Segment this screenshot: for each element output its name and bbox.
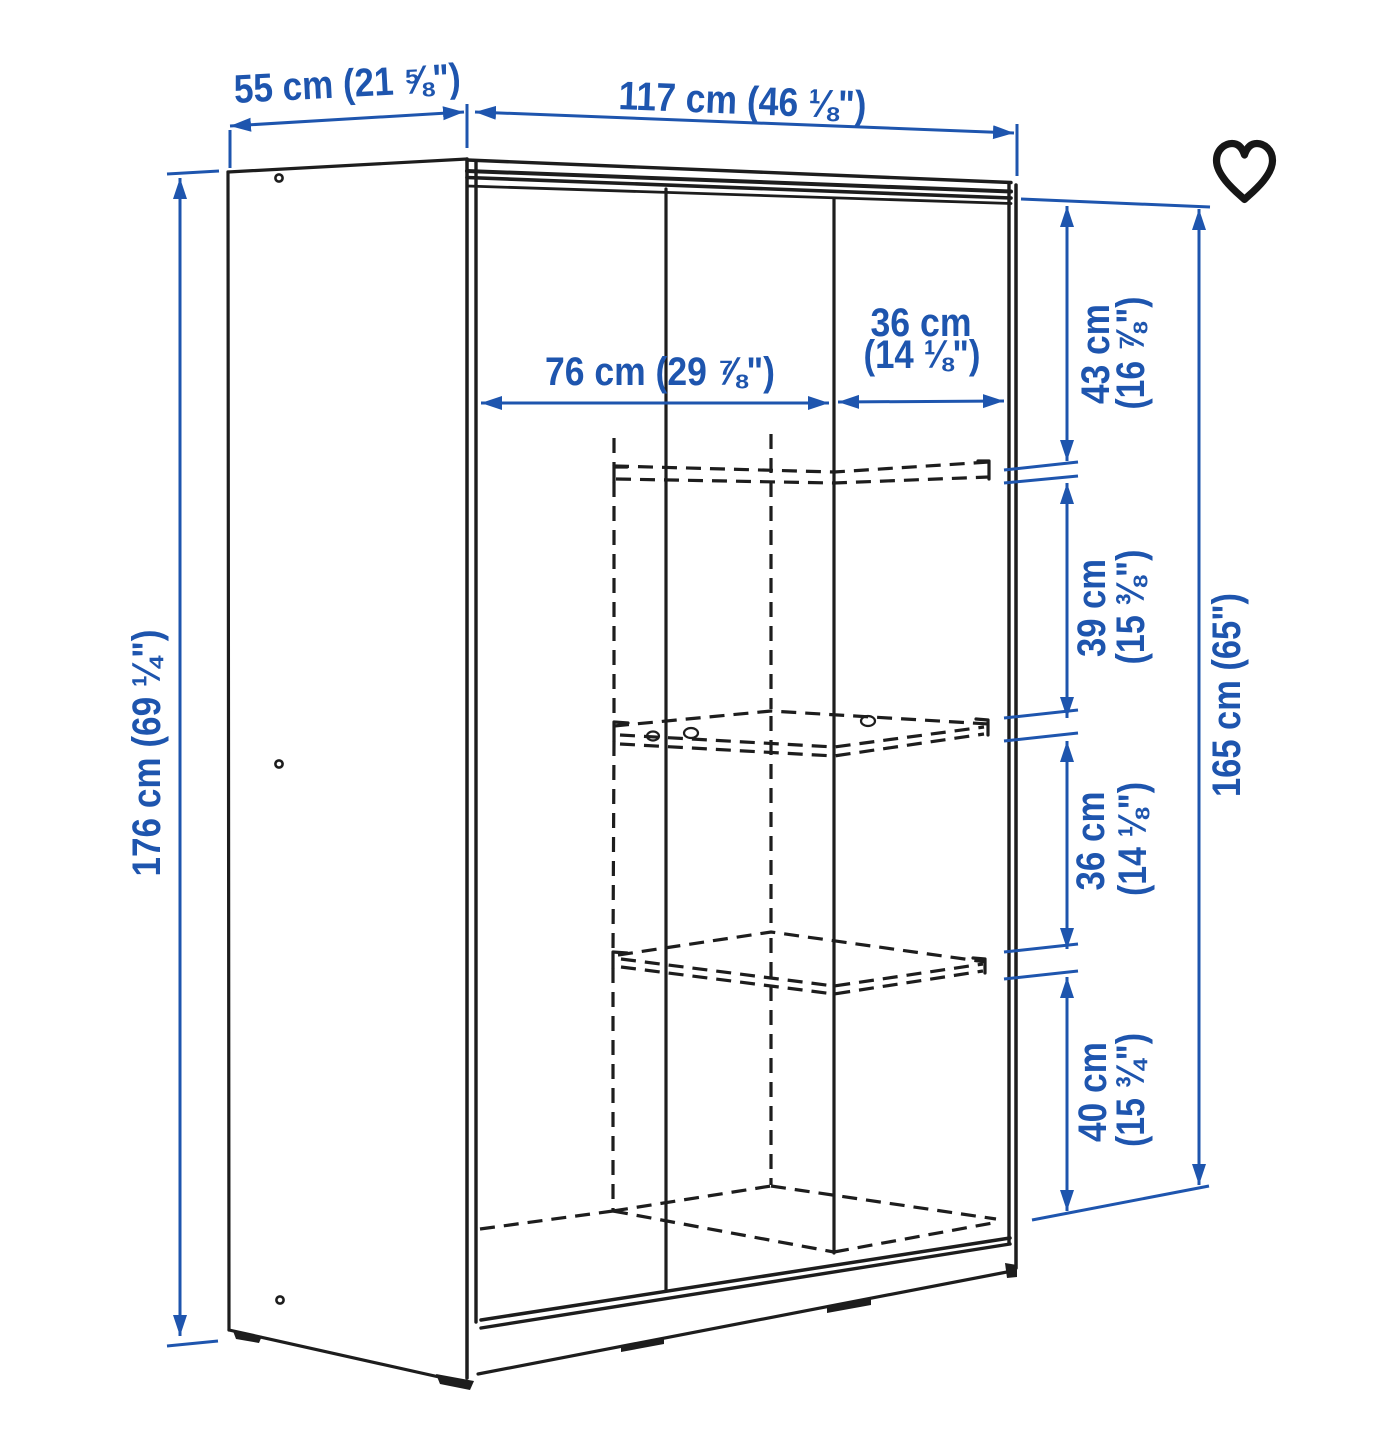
svg-text:(14 ⅛"): (14 ⅛") bbox=[1111, 782, 1155, 896]
svg-text:(15 ¾"): (15 ¾") bbox=[1109, 1033, 1153, 1147]
svg-text:76 cm (29 ⅞"): 76 cm (29 ⅞") bbox=[545, 350, 775, 394]
svg-text:(15 ⅜"): (15 ⅜") bbox=[1109, 550, 1153, 665]
svg-text:36 cm: 36 cm bbox=[1069, 792, 1113, 891]
svg-text:165 cm (65"): 165 cm (65") bbox=[1205, 593, 1249, 797]
svg-text:39 cm: 39 cm bbox=[1070, 559, 1114, 657]
svg-text:176 cm (69 ¼"): 176 cm (69 ¼") bbox=[125, 630, 169, 877]
svg-text:(16 ⅞"): (16 ⅞") bbox=[1109, 297, 1153, 410]
svg-text:55 cm (21 ⅝"): 55 cm (21 ⅝") bbox=[233, 56, 462, 112]
svg-text:(14 ⅛"): (14 ⅛") bbox=[864, 333, 981, 377]
